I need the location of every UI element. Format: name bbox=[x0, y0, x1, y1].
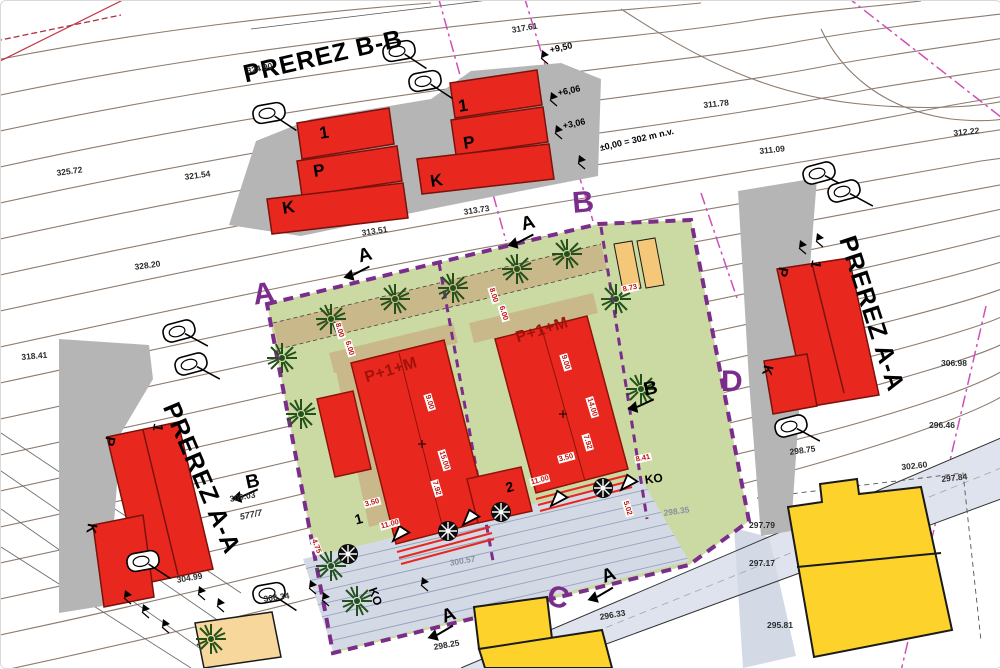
elevation-label: 296.46 bbox=[929, 421, 955, 430]
ko-label: KO bbox=[644, 471, 663, 485]
floor-label: P bbox=[312, 161, 326, 180]
floor-label: K bbox=[429, 171, 444, 190]
level-flag-icon bbox=[142, 604, 150, 618]
aa-east-k bbox=[764, 354, 817, 414]
floor-label: K bbox=[84, 523, 100, 535]
elevation-label: 297.17 bbox=[749, 559, 775, 568]
floor-label: P bbox=[462, 133, 476, 152]
tree-icon bbox=[286, 399, 316, 429]
level-flag-icon bbox=[198, 586, 206, 600]
tree-icon bbox=[502, 254, 532, 284]
tree-dark-icon bbox=[438, 521, 458, 541]
elevation-label: 297.79 bbox=[749, 521, 775, 530]
corner-b: B bbox=[571, 187, 595, 219]
plan-linework bbox=[1, 1, 1000, 668]
level-flag-icon bbox=[217, 598, 225, 612]
corner-d: D bbox=[721, 367, 743, 397]
level-flag-icon bbox=[541, 50, 549, 64]
tree-icon bbox=[438, 273, 468, 303]
site-plan-drawing: PREREZ B-B PREREZ A-A PREREZ A-A A B D C… bbox=[0, 0, 1000, 669]
elevation-label: 318.41 bbox=[21, 351, 48, 362]
corner-a: A bbox=[251, 278, 277, 311]
tree-stamp-icon bbox=[161, 316, 208, 356]
elevation-label: 306.98 bbox=[941, 359, 967, 368]
tree-dark-icon bbox=[593, 478, 613, 498]
level-flag-icon bbox=[816, 233, 824, 247]
tree-icon bbox=[196, 624, 226, 654]
tree-icon bbox=[380, 284, 410, 314]
tree-icon bbox=[267, 343, 297, 373]
tan-building-small bbox=[195, 612, 281, 668]
floor-label: K bbox=[281, 198, 296, 217]
tree-dark-icon bbox=[491, 502, 511, 522]
elevation-label: 295.81 bbox=[767, 621, 793, 630]
tree-dark-icon bbox=[338, 544, 358, 564]
tree-icon bbox=[552, 239, 582, 269]
tree-stamp-icon bbox=[173, 349, 220, 389]
